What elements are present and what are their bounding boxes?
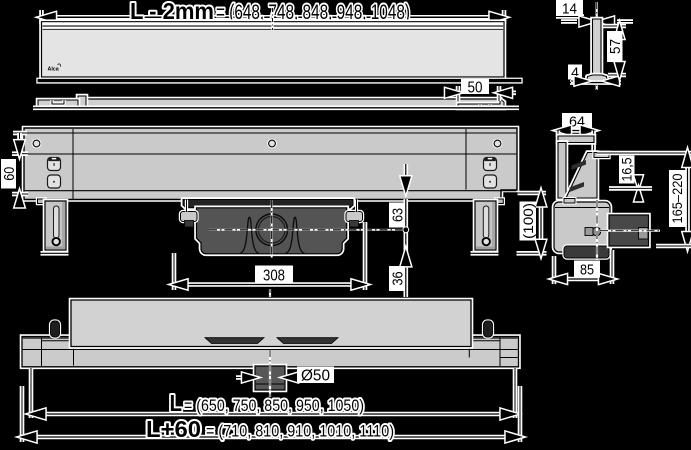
svg-text:165–220: 165–220	[670, 174, 685, 224]
svg-text:= (710, 810, 910, 1010, 1110): = (710, 810, 910, 1010, 1110)	[206, 422, 394, 441]
svg-text:308: 308	[263, 267, 285, 284]
svg-text:L+60: L+60	[146, 416, 201, 442]
svg-text:= (650, 750, 850, 950, 1050): = (650, 750, 850, 950, 1050)	[184, 397, 364, 415]
svg-text:60: 60	[1, 167, 18, 181]
svg-text:85: 85	[580, 261, 594, 278]
svg-text:57: 57	[607, 39, 624, 54]
svg-text:L: L	[170, 390, 183, 416]
svg-text:(100): (100)	[520, 203, 536, 239]
svg-text:50: 50	[468, 79, 483, 96]
svg-text:63: 63	[389, 208, 406, 222]
svg-text:Alca: Alca	[48, 66, 59, 72]
svg-text:36: 36	[389, 272, 406, 286]
svg-text:Ø50: Ø50	[301, 368, 330, 385]
svg-text:16,5: 16,5	[620, 158, 635, 182]
